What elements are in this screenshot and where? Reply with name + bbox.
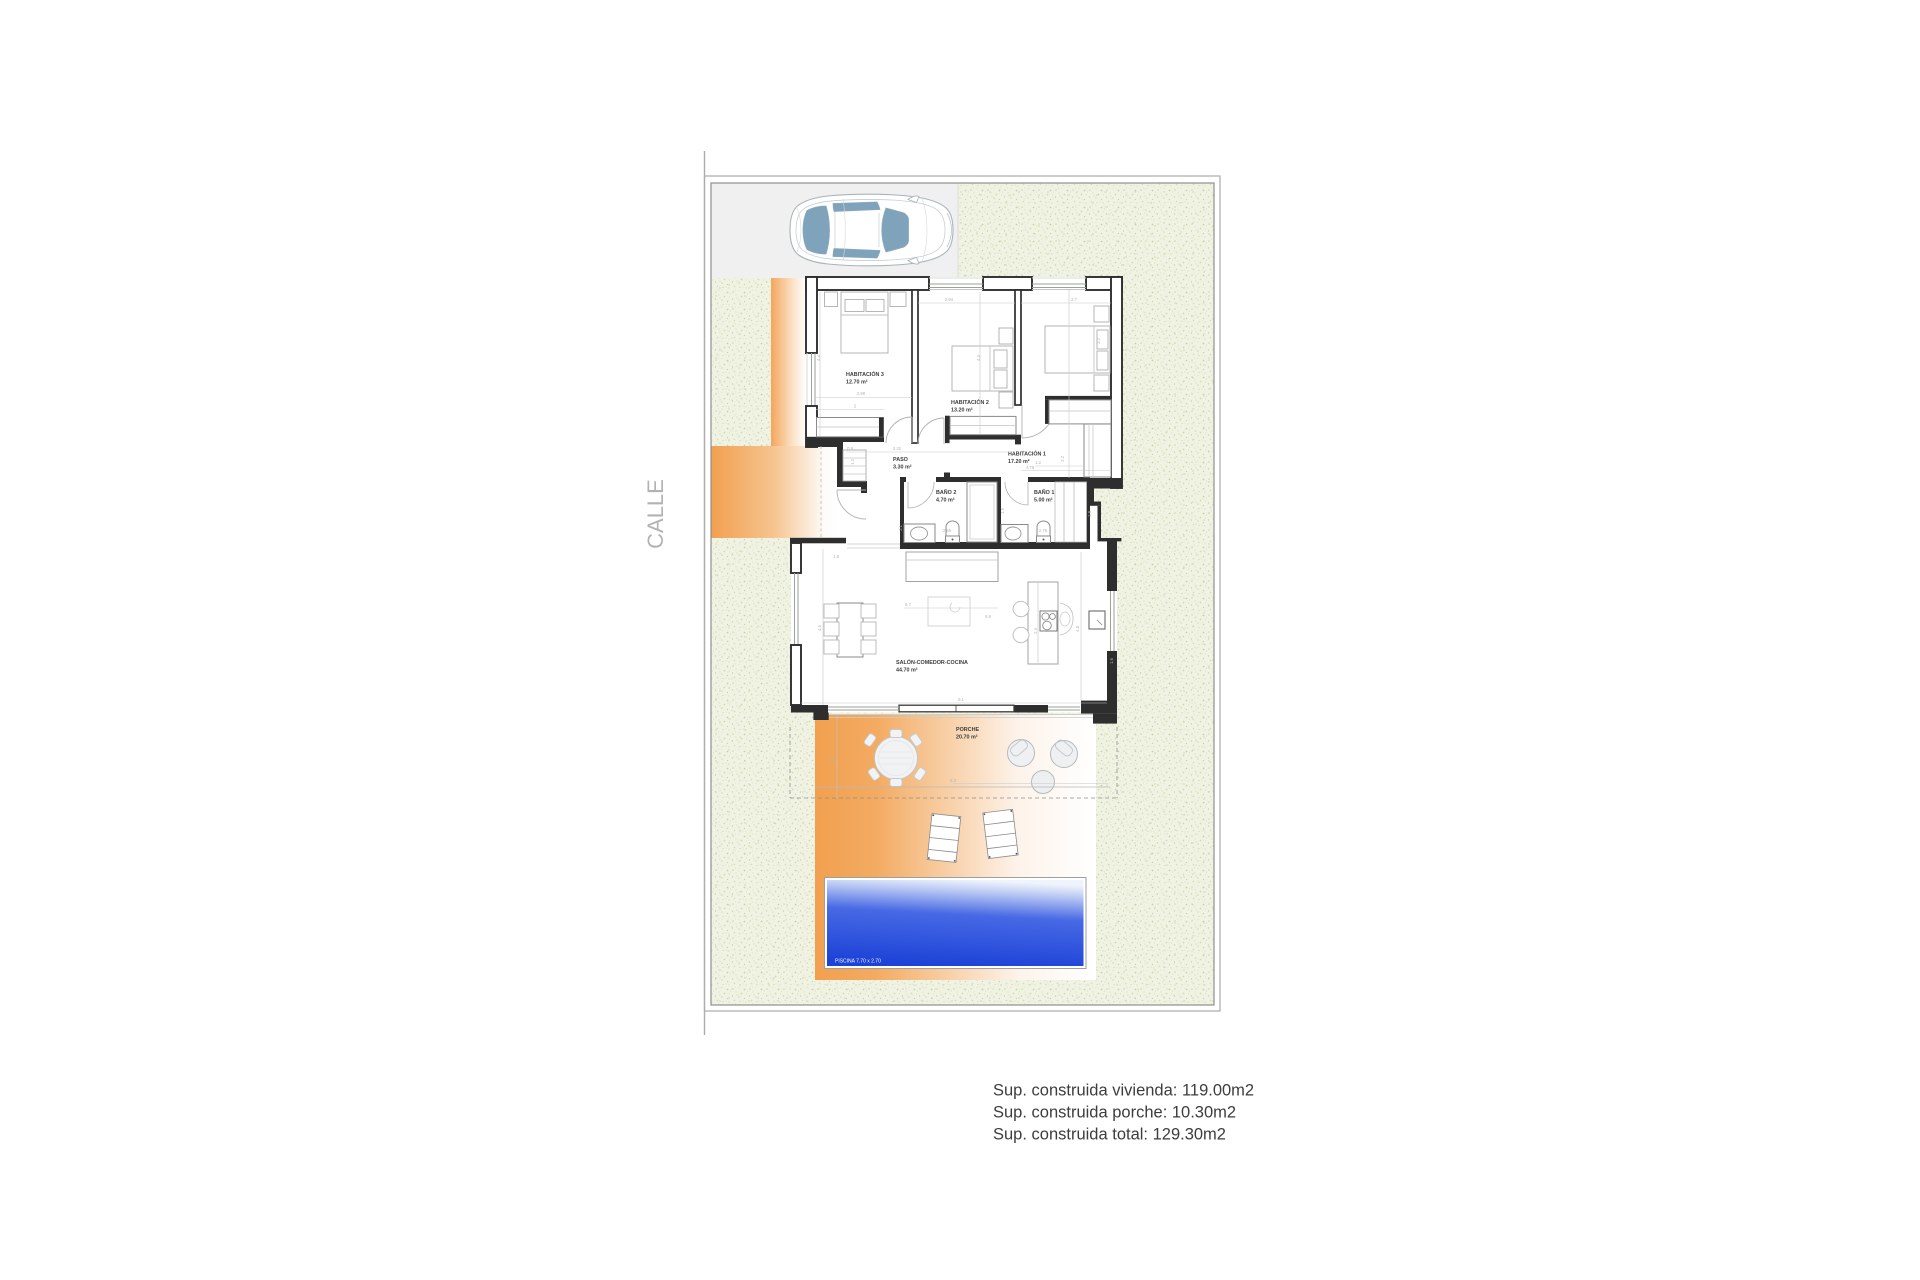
svg-text:PORCHE: PORCHE	[956, 727, 979, 733]
svg-text:Sup. construida vivienda: 119.: Sup. construida vivienda: 119.00m2	[993, 1082, 1254, 1100]
svg-text:5.9: 5.9	[985, 614, 991, 619]
svg-text:2.98: 2.98	[857, 391, 866, 396]
svg-text:3.30 m²: 3.30 m²	[893, 465, 912, 471]
svg-text:HABITACIÓN 2: HABITACIÓN 2	[951, 398, 989, 406]
svg-text:2.2: 2.2	[1060, 455, 1065, 461]
svg-text:1.8: 1.8	[833, 554, 839, 559]
svg-text:HABITACIÓN 1: HABITACIÓN 1	[1008, 450, 1046, 458]
svg-text:13.20 m²: 13.20 m²	[951, 408, 973, 414]
svg-text:4.4: 4.4	[816, 354, 821, 360]
svg-text:2.1: 2.1	[898, 524, 903, 530]
svg-text:1.8: 1.8	[1087, 510, 1092, 516]
svg-text:2.5: 2.5	[830, 757, 835, 763]
svg-text:BAÑO 2: BAÑO 2	[936, 489, 956, 496]
svg-text:1.2: 1.2	[850, 458, 855, 464]
svg-text:1.6: 1.6	[1000, 507, 1005, 513]
svg-text:44.70 m²: 44.70 m²	[896, 668, 918, 674]
svg-text:1.2: 1.2	[1035, 460, 1041, 465]
svg-text:3.2: 3.2	[1096, 337, 1101, 343]
svg-text:12.70 m²: 12.70 m²	[846, 380, 868, 386]
svg-text:20.70 m²: 20.70 m²	[956, 735, 978, 741]
svg-text:4.6: 4.6	[817, 624, 822, 630]
svg-text:SALÓN-COMEDOR-COCINA: SALÓN-COMEDOR-COCINA	[896, 658, 968, 666]
svg-text:2.32: 2.32	[893, 446, 902, 451]
svg-text:0.9: 0.9	[847, 446, 853, 451]
svg-text:Sup. construida total: 129.30m: Sup. construida total: 129.30m2	[993, 1126, 1226, 1144]
svg-text:BAÑO 1: BAÑO 1	[1034, 489, 1054, 496]
svg-text:4.78: 4.78	[1026, 465, 1035, 470]
svg-text:HABITACIÓN 3: HABITACIÓN 3	[846, 370, 884, 378]
svg-text:2.7: 2.7	[1071, 297, 1077, 302]
svg-text:2.4: 2.4	[1033, 627, 1038, 633]
svg-text:2.75: 2.75	[1039, 528, 1048, 533]
svg-text:PISCINA 7.70 x 2.70: PISCINA 7.70 x 2.70	[835, 959, 881, 965]
svg-text:2.65: 2.65	[943, 528, 952, 533]
svg-text:CALLE: CALLE	[643, 479, 668, 549]
svg-text:PASO: PASO	[893, 457, 908, 463]
svg-text:9.1: 9.1	[958, 697, 964, 702]
svg-text:5.00 m²: 5.00 m²	[1034, 498, 1053, 504]
svg-text:8.3: 8.3	[950, 778, 956, 783]
svg-text:4.70 m²: 4.70 m²	[936, 498, 955, 504]
svg-text:Sup. construida porche: 10.30m: Sup. construida porche: 10.30m2	[993, 1104, 1236, 1122]
svg-text:4.8: 4.8	[1075, 625, 1080, 631]
svg-text:6.7: 6.7	[905, 602, 911, 607]
svg-text:4.4: 4.4	[976, 354, 981, 360]
svg-text:1.6: 1.6	[1109, 657, 1114, 663]
svg-text:2.94: 2.94	[945, 297, 954, 302]
